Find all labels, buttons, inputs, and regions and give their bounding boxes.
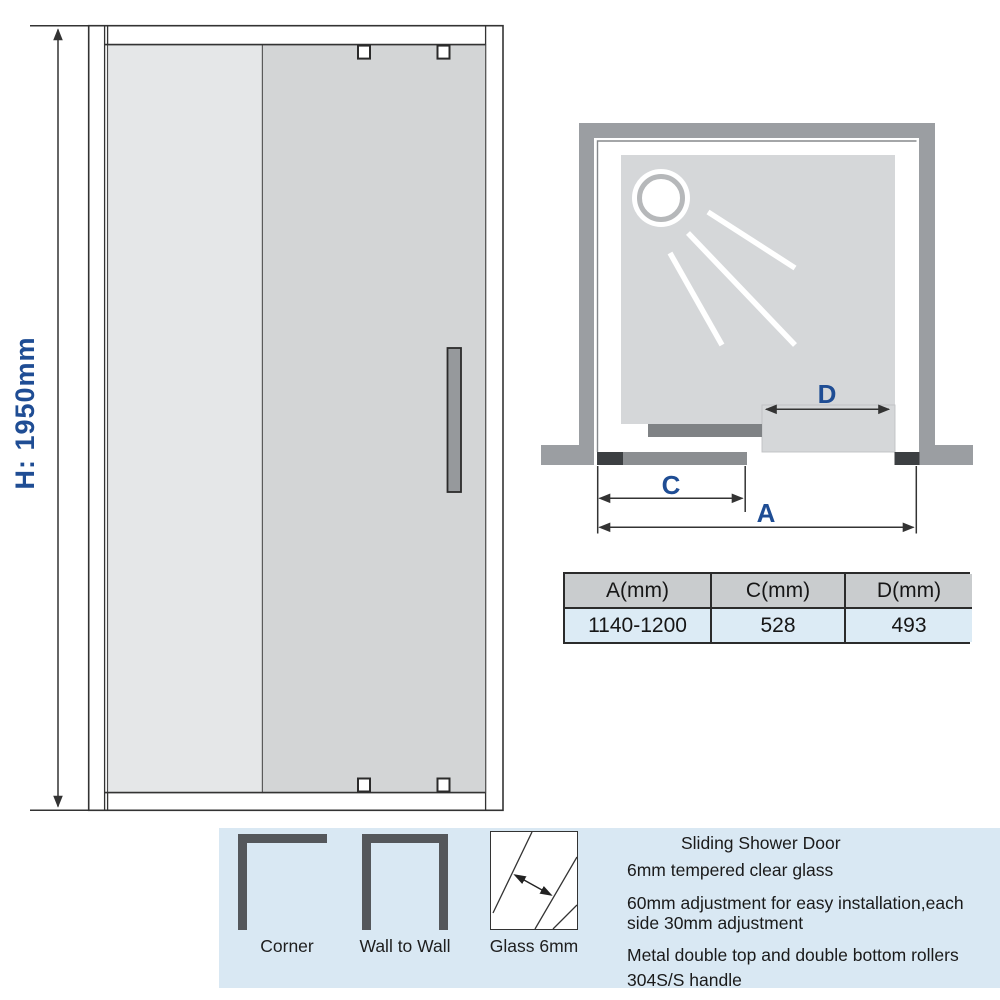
corner-wall-icon	[238, 834, 327, 930]
roller-bracket-bottom-left	[358, 779, 370, 792]
fixed-panel-plan	[648, 424, 762, 437]
wall-to-wall-icon	[362, 834, 448, 930]
fixed-glass-panel	[108, 45, 263, 793]
feature-handle: 304S/S handle	[627, 970, 742, 991]
wall-profile-block-right	[895, 452, 920, 465]
table-value-c: 528	[710, 609, 844, 642]
option-label-wall-to-wall: Wall to Wall	[343, 936, 467, 957]
feature-rollers: Metal double top and double bottom rolle…	[627, 945, 959, 966]
wall-profile-block-left	[597, 452, 623, 465]
wall-right	[919, 123, 935, 445]
option-label-corner: Corner	[238, 936, 336, 957]
top-plan-view: D C A	[530, 100, 1000, 560]
wall-left	[579, 123, 594, 445]
table-value-a: 1140-1200	[565, 609, 710, 642]
feature-glass: 6mm tempered clear glass	[627, 860, 833, 881]
height-dimension-label: H: 1950mm	[10, 336, 40, 489]
glass-thickness-icon	[490, 831, 578, 930]
roller-bracket-bottom-right	[438, 779, 450, 792]
feature-banner: Corner Wall to Wall Glass 6mm Sliding Sh…	[219, 828, 1000, 988]
wall-top	[579, 123, 935, 138]
feature-adjustment: 60mm adjustment for easy installation,ea…	[627, 893, 979, 933]
dimension-label-d: D	[818, 379, 837, 409]
wall-foot-left	[541, 445, 594, 465]
product-title: Sliding Shower Door	[681, 833, 841, 854]
sliding-panel-plan	[762, 405, 895, 452]
product-diagram-sheet: H: 1950mm	[0, 0, 1000, 1000]
table-header-d: D(mm)	[844, 574, 972, 609]
option-label-glass-6mm: Glass 6mm	[480, 936, 588, 957]
dimension-label-c: C	[662, 470, 681, 500]
wall-foot-right	[919, 445, 973, 465]
roller-bracket-top-left	[358, 46, 370, 59]
dimension-label-a: A	[757, 498, 776, 528]
door-handle	[448, 348, 462, 492]
table-header-a: A(mm)	[565, 574, 710, 609]
front-elevation-view: H: 1950mm	[0, 0, 520, 820]
table-value-d: 493	[844, 609, 972, 642]
table-header-c: C(mm)	[710, 574, 844, 609]
roller-bracket-top-right	[438, 46, 450, 59]
dimension-spec-table: A(mm) C(mm) D(mm) 1140-1200 528 493	[563, 572, 970, 644]
